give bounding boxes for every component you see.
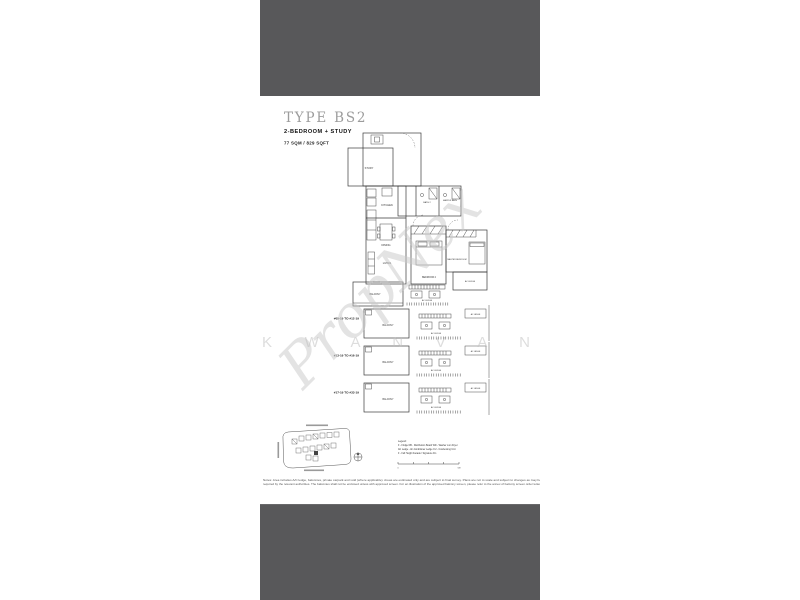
- street-label-smudge-bottom: [304, 470, 324, 472]
- scale-bar: 0 5M: [398, 462, 461, 470]
- screenshot-page: TYPE BS2 2-BEDROOM + STUDY 77 SQM / 829 …: [0, 0, 800, 600]
- db-box: [371, 135, 383, 144]
- ac-ledge-label: AC LEDGE: [422, 299, 433, 302]
- legend-line: F - Fridge DB - Distribution Board WD - …: [398, 444, 458, 447]
- legend-heading: Legend:: [398, 440, 407, 443]
- disclaimer-notes: Notes: Area includes A/C ledge, balconie…: [263, 479, 540, 486]
- balcony-section-3: #17-19 TO #33-19 BALCONY AC LEDGE AC LED…: [334, 379, 489, 415]
- header-block: TYPE BS2 2-BEDROOM + STUDY 77 SQM / 829 …: [284, 110, 367, 146]
- top-letterbox-bar: [260, 0, 540, 96]
- floorplan-sheet: TYPE BS2 2-BEDROOM + STUDY 77 SQM / 829 …: [260, 96, 540, 505]
- ac-ledge-label: AC LEDGE: [471, 387, 481, 390]
- propnex-watermark: PropNex: [264, 171, 494, 401]
- unit-area: 77 SQM / 829 SQFT: [284, 141, 329, 146]
- entry-door-arc: [400, 133, 415, 148]
- bed-master: [469, 242, 485, 264]
- street-label-smudge-top: [306, 425, 328, 427]
- site-key-plan: [278, 425, 363, 472]
- floorplan-svg: TYPE BS2 2-BEDROOM + STUDY 77 SQM / 829 …: [260, 96, 540, 505]
- floor-range-label: #17-19 TO #33-19: [334, 391, 360, 395]
- scale-zero: 0: [398, 468, 400, 470]
- kitchen-label: KITCHEN: [381, 203, 393, 207]
- ac-ledge-label: AC LEDGE: [431, 406, 442, 409]
- entry-hall: [363, 133, 421, 186]
- disclaimer-line: required by the relevant authorities. Th…: [263, 483, 540, 486]
- ac-ledge-label: AC LEDGE: [431, 369, 442, 372]
- balcony-label: BALCONY: [383, 361, 394, 364]
- page-title: TYPE BS2: [284, 110, 367, 126]
- ac-ledge-label: AC LEDGE: [465, 280, 476, 283]
- legend-line: F - Full Height Facade / Signature Fin: [398, 452, 437, 455]
- disclaimer-line: Notes: Area includes A/C ledge, balconie…: [263, 479, 540, 482]
- washer-dryer-box: [367, 198, 376, 206]
- study-label: STUDY: [365, 166, 374, 170]
- phone-screenshot: TYPE BS2 2-BEDROOM + STUDY 77 SQM / 829 …: [260, 0, 540, 600]
- unit-subtitle: 2-BEDROOM + STUDY: [284, 129, 352, 135]
- kitchen-counter: [367, 210, 376, 240]
- kitchen-island: [382, 188, 392, 196]
- north-compass: [354, 452, 362, 461]
- fridge-box: [367, 189, 376, 197]
- condensing-unit-box: [429, 291, 440, 298]
- street-label-smudge-left: [278, 442, 280, 458]
- ac-ledge-label: AC LEDGE: [471, 313, 481, 316]
- scale-max: 5M: [458, 468, 461, 470]
- legend-line: AC Ledge - Air-Conditioner Ledge CU - Co…: [398, 448, 456, 451]
- unit-location-marker: [314, 451, 318, 455]
- legend-block: Legend: F - Fridge DB - Distribution Boa…: [398, 440, 458, 455]
- balcony-label: BALCONY: [383, 398, 394, 401]
- building-footprints: [292, 432, 339, 461]
- bottom-letterbox-bar: [260, 504, 540, 600]
